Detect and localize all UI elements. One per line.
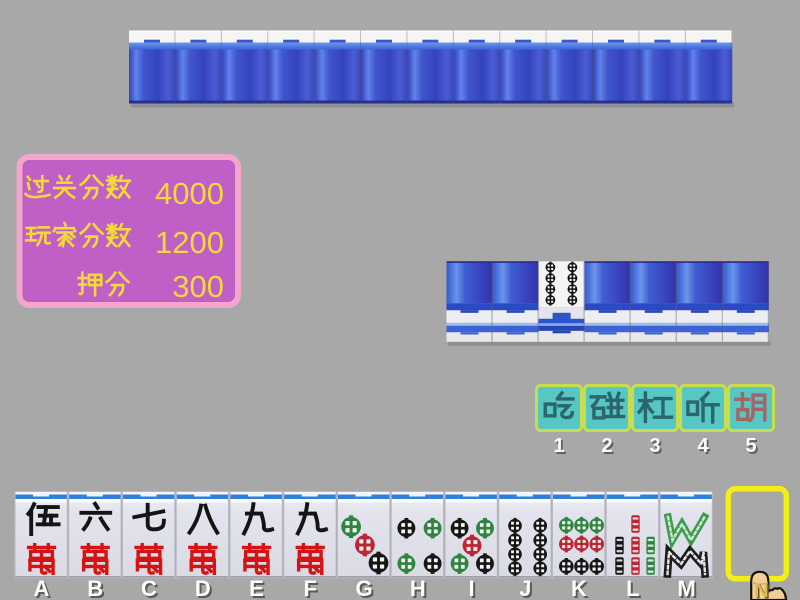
svg-text:300: 300 [172,269,224,304]
svg-text:3: 3 [649,435,660,457]
svg-text:E: E [249,576,264,600]
svg-text:L: L [626,576,639,600]
svg-text:K: K [571,576,587,600]
svg-text:1200: 1200 [155,225,224,260]
svg-text:1: 1 [553,435,564,457]
svg-text:G: G [355,576,372,600]
svg-text:4: 4 [697,435,709,457]
svg-text:J: J [519,576,531,600]
svg-text:M: M [677,576,695,600]
svg-text:4000: 4000 [155,176,224,211]
svg-text:D: D [195,576,211,600]
svg-text:A: A [34,576,50,600]
svg-text:I: I [468,576,474,600]
svg-text:N: N [754,580,768,600]
svg-text:2: 2 [601,435,612,457]
svg-text:B: B [87,576,103,600]
svg-text:C: C [141,576,157,600]
svg-text:5: 5 [745,435,756,457]
svg-text:H: H [410,576,426,600]
svg-text:F: F [303,576,316,600]
